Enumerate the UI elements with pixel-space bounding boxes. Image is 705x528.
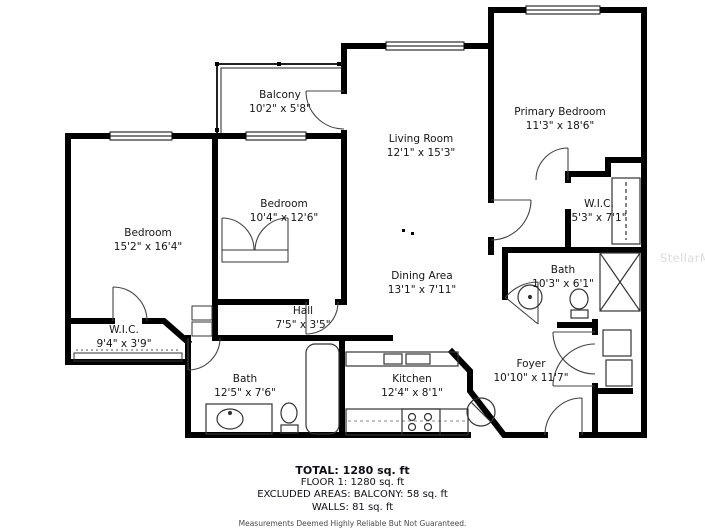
primary-door: [491, 200, 531, 240]
kitchen-counter-bottom: [346, 409, 468, 435]
bathtub: [306, 344, 339, 434]
vanity-counter: [206, 404, 272, 434]
bath-left-door: [188, 338, 220, 370]
balcony-door: [306, 91, 344, 129]
closet-shelf: [603, 330, 631, 356]
watermark: StellarMLS: [660, 251, 705, 265]
disclaimer-text: Measurements Deemed Highly Reliable But …: [0, 519, 705, 528]
closet-shelf: [606, 360, 632, 386]
room-label-bedroom-2: Bedroom10'4" x 12'6": [250, 198, 318, 225]
room-label-bedroom-3: Bedroom15'2" x 16'4": [114, 227, 182, 254]
room-label-bath-primary: Bath10'3" x 6'1": [532, 264, 594, 291]
floor-area-text: FLOOR 1: 1280 sq. ft: [0, 477, 705, 489]
entry-door: [545, 398, 582, 435]
room-label-bath-2: Bath12'5" x 7'6": [214, 373, 276, 400]
total-area-text: TOTAL: 1280 sq. ft: [0, 464, 705, 477]
room-label-balcony: Balcony10'2" x 5'8": [249, 89, 311, 116]
floorplan-svg: [0, 0, 705, 460]
area-summary: TOTAL: 1280 sq. ft FLOOR 1: 1280 sq. ft …: [0, 464, 705, 528]
room-label-foyer: Foyer10'10" x 11'7": [493, 358, 568, 385]
room-label-dining-area: Dining Area13'1" x 7'11": [388, 270, 456, 297]
closet-shelf: [222, 250, 288, 262]
room-label-wic-primary: W.I.C.5'3" x 7'1": [571, 198, 626, 225]
ceiling-marks: [402, 229, 414, 235]
floor-plan: Balcony10'2" x 5'8" Living Room12'1" x 1…: [0, 0, 705, 460]
wic-right-door: [536, 148, 568, 180]
room-label-living-room: Living Room12'1" x 15'3": [387, 133, 455, 160]
room-label-primary-bedroom: Primary Bedroom11'3" x 18'6": [514, 106, 605, 133]
toilet-icon: [281, 403, 297, 423]
toilet-icon: [570, 289, 588, 309]
bedroom-left-wic-door: [113, 287, 147, 321]
excluded-area-text: EXCLUDED AREAS: BALCONY: 58 sq. ft: [0, 489, 705, 501]
room-label-hall: Hall7'5" x 3'5": [275, 305, 330, 332]
fixtures: [74, 178, 640, 435]
room-label-wic-left: W.I.C.9'4" x 3'9": [96, 324, 151, 351]
kitchen-sink: [384, 354, 402, 364]
walls-area-text: WALLS: 81 sq. ft: [0, 502, 705, 514]
stove: [402, 409, 440, 435]
room-label-kitchen: Kitchen12'4" x 8'1": [381, 373, 443, 400]
